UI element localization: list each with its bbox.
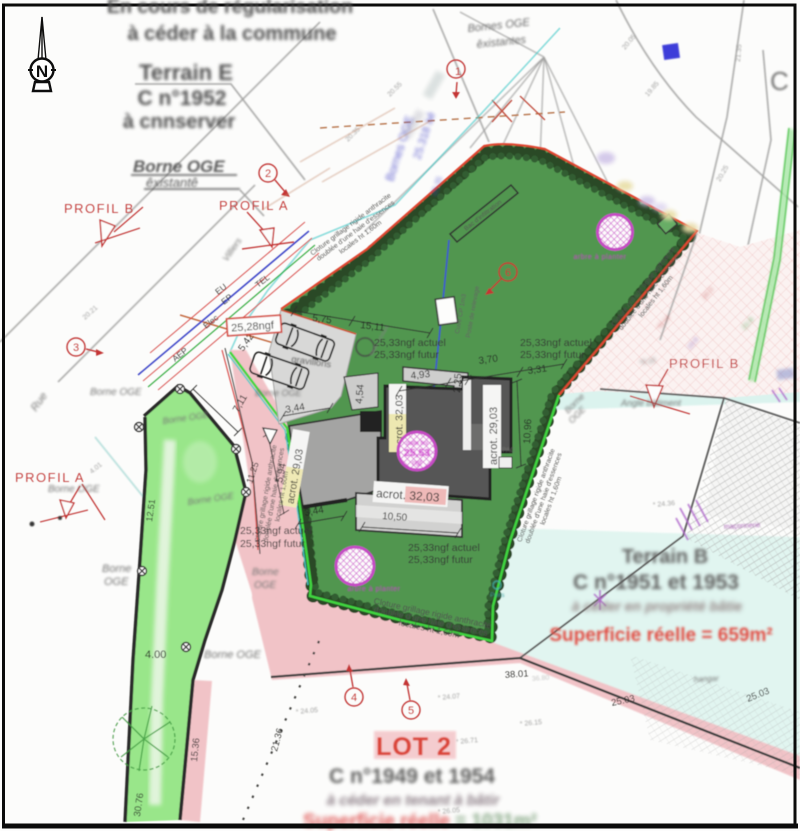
- svg-text:C n°1952: C n°1952: [138, 87, 227, 110]
- svg-text:Borne OGE: Borne OGE: [133, 157, 225, 176]
- svg-text:N: N: [36, 62, 48, 81]
- svg-text:à céder à la commune: à céder à la commune: [128, 23, 337, 45]
- svg-text:êxistantê: êxistantê: [146, 175, 198, 190]
- svg-text:En cours de régularisation: En cours de régularisation: [107, 0, 353, 18]
- svg-text:Terrain E: Terrain E: [139, 60, 233, 85]
- svg-text:à cnnserver: à cnnserver: [123, 111, 236, 133]
